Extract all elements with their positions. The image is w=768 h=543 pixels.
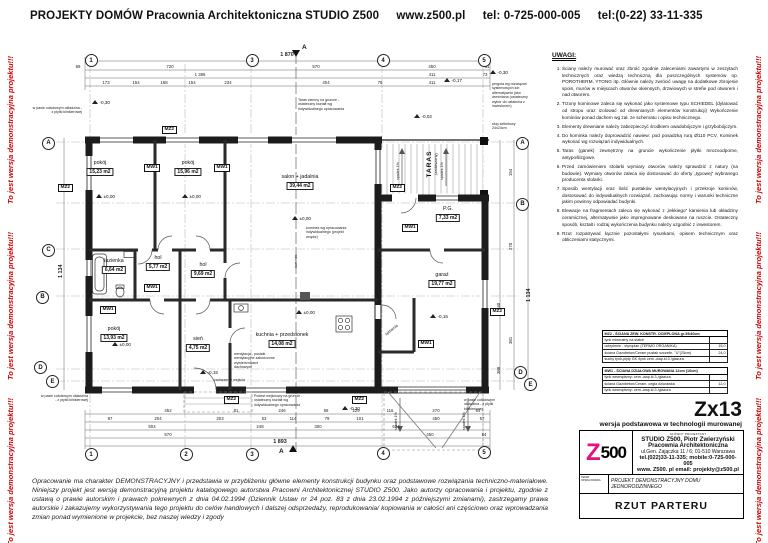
elevation-marker: ±0,00 <box>112 342 131 347</box>
room-label-pokoj-1: pokój 15,23 m2 <box>86 160 113 176</box>
elevation-marker: ±0,00 <box>96 194 115 199</box>
grid-axis-bottom-1: 1 <box>85 448 98 461</box>
elevation-marker: -0,15 <box>430 314 448 319</box>
dimension-value: 570 <box>312 64 319 69</box>
grid-axis-bottom-4: 4 <box>377 447 390 460</box>
grid-axis-left-a: A <box>42 137 55 150</box>
room-label-hol-1: hol 5,77 m2 <box>146 255 170 271</box>
wall-tag-mz2: MZ2 <box>490 308 505 316</box>
grid-axis-left-c: C <box>42 244 55 257</box>
dimension-value: 79 <box>325 416 330 421</box>
wall-tag-mw1: MW1 <box>418 340 434 348</box>
elevation-marker: -0,02 <box>414 114 432 119</box>
annotation-went-note: wentylacja - pustaki wentylacyjne zakońc… <box>234 352 276 370</box>
section-marker-a-top: A <box>302 44 307 51</box>
wall-tag-mw1: MW1 <box>144 164 160 172</box>
annotation-kominek-note: kominek wg opracowania indywidualnego (p… <box>306 226 350 239</box>
annotation-pergola: pergola wg rozwiązań systemowych lub alt… <box>492 82 536 109</box>
dimension-value: 116 <box>387 408 394 413</box>
wall-tag-mw1: MW1 <box>402 224 418 232</box>
note-item: Do kominka należy doprowadzić nawiew: po… <box>562 133 738 146</box>
dimension-value: 154 <box>132 80 139 85</box>
wall-tag-mw1: MW1 <box>100 306 116 314</box>
dimension-value: 154 <box>508 169 513 176</box>
dimension-value: 204 <box>154 416 161 421</box>
dimension-value: 97 <box>108 416 113 421</box>
dimension-value: 452 <box>164 408 171 413</box>
room-area: 6,64 m2 <box>102 266 126 274</box>
grid-axis-bottom-5: 5 <box>478 446 491 459</box>
annotation-cokol: w pasie cokołowym okładzina - z płytki k… <box>464 398 510 411</box>
elevation-marker: -0,30 <box>342 406 360 411</box>
wall-tag-mz2: MZ2 <box>352 396 367 404</box>
note-item: Ściany należy murować oraz zbroić zgodni… <box>562 66 738 99</box>
grid-axis-bottom-2: 2 <box>180 448 193 461</box>
grid-axis-top-3: 3 <box>246 54 259 67</box>
grid-axis-bottom-3: 3 <box>246 448 259 461</box>
dimension-value: 84 <box>482 432 487 437</box>
dimension-value: 450 <box>432 416 439 421</box>
room-label-pokoj-2: pokój 15,96 m2 <box>174 160 201 176</box>
grid-axis-right-d: D <box>514 366 527 379</box>
room-label-sien: sień 4,75 m2 <box>186 336 210 352</box>
room-label-hol-2: hol 9,69 m2 <box>191 262 215 278</box>
dimension-value: 76 <box>378 80 383 85</box>
dimension-value: 58 <box>324 408 329 413</box>
wall-tag-mz2: MZ2 <box>58 184 73 192</box>
dimension-value: 1 386 <box>195 72 206 77</box>
grid-axis-right-e: E <box>524 378 537 391</box>
dimension-value: 234 <box>224 80 231 85</box>
wall-tag-mz2: MZ2 <box>224 396 239 404</box>
annotation-kominek: kominek <box>294 255 298 268</box>
grid-axis-left-d: D <box>34 361 47 374</box>
grid-axis-top-4: 4 <box>377 54 390 67</box>
elevation-marker: -0,15 <box>200 370 218 375</box>
annotation-spadek: spadek 1% <box>396 162 400 180</box>
legend-row-value <box>710 387 728 393</box>
dimension-value: 411 <box>429 80 436 85</box>
room-area: 13,93 m2 <box>100 334 127 342</box>
room-area: 5,77 m2 <box>146 263 170 271</box>
annotation-spadek: spadek 1% <box>394 412 398 430</box>
dimension-value: 246 <box>278 408 285 413</box>
room-area: 15,23 m2 <box>86 168 113 176</box>
wall-tag-mw1: MW1 <box>214 164 230 172</box>
dimension-value: 504 <box>148 424 155 429</box>
note-item: Elewacje na fragmentach zaleca się wykon… <box>562 208 738 228</box>
room-label-taras: TARAS (zadaszony) <box>426 144 438 184</box>
demo-disclaimer: Opracowanie ma charakter DEMONSTRACYJNY … <box>32 478 548 523</box>
grid-axis-left-b: B <box>36 291 49 304</box>
grid-axis-top-5: 5 <box>478 54 491 67</box>
grid-axis-left-e: E <box>46 375 59 388</box>
drawing-title: RZUT PARTERU <box>580 494 743 518</box>
dimension-value: 270 <box>432 408 439 413</box>
notes-heading: UWAGI: <box>552 52 576 61</box>
legend-table-mz2: MZ2 - ŚCIANA ZEW. KONSTR. OCIEPLONA gr.3… <box>602 330 728 363</box>
dimension-value: 81 <box>234 408 239 413</box>
notes-panel: UWAGI: Ściany należy murować oraz zbroić… <box>552 44 738 246</box>
grid-axis-top-1: 1 <box>85 54 98 67</box>
annotation-zadaszenie: zadaszenie wejścia <box>214 378 248 382</box>
z500-logo-500: 500 <box>601 443 626 463</box>
dimension-value: 248 <box>256 424 263 429</box>
room-area: 9,69 m2 <box>191 270 215 278</box>
room-area: 39,44 m2 <box>286 182 313 190</box>
dimension-total-left: 1 134 <box>58 265 64 279</box>
grid-axis-right-b: B <box>516 198 529 211</box>
room-label-salon: salon + jadalnia 39,44 m2 <box>282 174 319 190</box>
dimension-value: 720 <box>166 64 173 69</box>
wall-legend: MZ2 - ŚCIANA ZEW. KONSTR. OCIEPLONA gr.3… <box>602 330 728 398</box>
note-item: Trzony kominowe zaleca się wykonać jako … <box>562 101 738 121</box>
elevation-marker: -0,30 <box>92 100 110 105</box>
dimension-value: 450 <box>426 432 433 437</box>
dimension-value: 101 <box>356 416 363 421</box>
dimension-value: 203 <box>216 416 223 421</box>
elevation-marker: -0,17 <box>444 78 462 83</box>
dimension-value: 404 <box>322 80 329 85</box>
note-item: Rzut rozpatrywać łącznie pozostałymi rys… <box>562 231 738 244</box>
room-label-garaz: garaż 19,77 m2 <box>428 272 455 288</box>
legend-row-label: tynk wewnętrzny: cem.-wap.kl.3 /glazura <box>603 387 710 393</box>
elevation-marker: ±0,00 <box>292 216 311 221</box>
annotation-cokol: w pasie cokołowym okładzina - z płytki k… <box>40 394 88 403</box>
title-block-row-subject: TEMAT OPRACOWANIA PROJEKT DEMONSTRACYJNY… <box>580 475 743 494</box>
dimension-value: 57 <box>480 416 485 421</box>
room-area: 15,96 m2 <box>174 168 201 176</box>
project-code-subtitle: wersja podstawowa w technologii murowane… <box>584 421 742 428</box>
room-area: 14,08 m2 <box>268 340 295 348</box>
title-block-row-contact: Z500 GŁÓWNY PROJEKTANT STUDIO Z500, Piot… <box>580 431 743 475</box>
studio-phones: tel.(022)33-11-335; mobile:0-725-000-005 <box>635 455 741 467</box>
legend-row-label: suchy tynk-płyty GK /tynk cem.-wap.kl.3 … <box>603 356 710 362</box>
studio-contact-info: GŁÓWNY PROJEKTANT STUDIO Z500, Piotr Zwi… <box>633 431 743 474</box>
annotation-podest: Podest wejściowy na gruncie - ostateczny… <box>254 394 306 407</box>
dimension-value: 411 <box>429 72 436 77</box>
elevation-marker: -0,30 <box>490 70 508 75</box>
note-item: Elementy drewniane należy zabezpieczyć ś… <box>562 124 738 131</box>
subject-label: TEMAT OPRACOWANIA <box>580 475 609 493</box>
room-label-pg: P.G. 7,33 m2 <box>436 206 460 222</box>
annotation-taras-ziemny: Taras ziemny na gruncie - ostateczny ksz… <box>298 98 356 111</box>
legend-row-value <box>710 356 728 362</box>
dimension-value: 270 <box>508 243 513 250</box>
dimension-value: 381 <box>508 337 513 344</box>
z500-logo: Z500 <box>580 431 633 474</box>
legend-table-mw1: MW1 - ŚCIANA DZIAŁOWA MUROWANA 12cm (16c… <box>602 367 728 394</box>
note-item: Taras (ganek) zewnętrzny na gruncie wyko… <box>562 148 738 161</box>
project-subject: PROJEKT DEMONSTRACYJNY DOMU JEDNORODZINN… <box>609 475 743 493</box>
room-area: 19,77 m2 <box>428 280 455 288</box>
studio-name: STUDIO Z500, Piotr Zwierzyński <box>635 436 741 443</box>
dimension-value: 173 <box>102 80 109 85</box>
notes-list: Ściany należy murować oraz zbroić zgodni… <box>562 66 738 244</box>
wall-tag-mz2: MZ2 <box>390 184 405 192</box>
room-label-pokoj-3: pokój 13,93 m2 <box>100 326 127 342</box>
dimension-value: 53 <box>262 416 267 421</box>
wall-tag-mz2: MZ2 <box>162 126 177 134</box>
wall-tag-mw1: MW1 <box>144 284 160 292</box>
section-marker-a-bottom: A <box>279 448 284 455</box>
z500-logo-z: Z <box>586 443 601 462</box>
title-block: Z500 GŁÓWNY PROJEKTANT STUDIO Z500, Piot… <box>579 430 744 519</box>
dimension-value: 114 <box>290 416 297 421</box>
dimension-value: 388 <box>496 367 501 374</box>
dimension-value: 154 <box>188 80 195 85</box>
dimension-total-top: 1 870 <box>280 52 294 58</box>
room-area: 7,33 m2 <box>436 214 460 222</box>
dimension-value: 300 <box>314 424 321 429</box>
studio-web-email: www. Z500. pl email: projekty@z500.pl <box>635 467 741 473</box>
dimension-total-right: 1 134 <box>526 289 532 303</box>
project-code: Zx13 <box>660 398 742 422</box>
room-label-kuchnia: kuchnia + przedsionek 14,08 m2 <box>256 332 309 348</box>
dimension-value: 73 <box>483 72 488 77</box>
drawing-sheet: PROJEKTY DOMÓW Pracownia Architektoniczn… <box>0 0 768 543</box>
room-area: 4,75 m2 <box>186 344 210 352</box>
room-label-lazienka: łazienka 6,64 m2 <box>102 258 126 274</box>
note-item: Przed zamówieniem stolarki wymiary otwor… <box>562 164 738 184</box>
dimension-value: 570 <box>164 432 171 437</box>
annotation-slup: słup żelbetowy 24x24cm <box>492 122 530 131</box>
elevation-marker: ±0,00 <box>296 310 315 315</box>
annotation-cokol: w pasie cokołowym okładzina - z płytki k… <box>30 106 82 115</box>
grid-axis-right-a: A <box>516 137 529 150</box>
annotation-spadek: spadek 1% <box>462 412 466 430</box>
dimension-total-bottom: 1 893 <box>273 439 287 445</box>
dimension-value: 450 <box>428 64 435 69</box>
note-item: Sposób wentylacji oraz ilość pustaków we… <box>562 186 738 206</box>
annotation-spadek: spadek 1% <box>440 162 444 180</box>
elevation-marker: ±0,00 <box>182 194 201 199</box>
dimension-value: 168 <box>160 80 167 85</box>
dimension-value: 69 <box>76 64 81 69</box>
